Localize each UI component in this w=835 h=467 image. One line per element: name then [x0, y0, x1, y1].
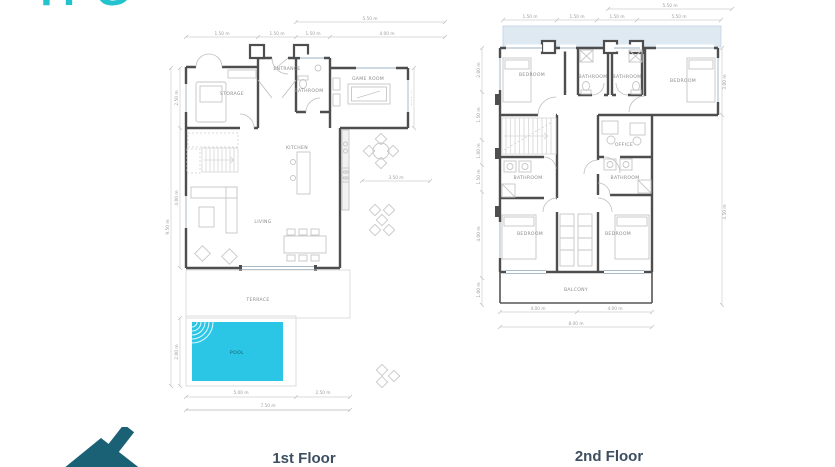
room-label-pool: POOL [230, 350, 244, 356]
floor2-caption: 2nd Floor [571, 448, 647, 465]
toilet [583, 82, 590, 91]
dim-label: 4.00 m [607, 306, 622, 312]
wardrobe [578, 214, 592, 266]
office-chair [607, 136, 615, 144]
dim-label: 4.00 m [530, 306, 545, 312]
cabinet [228, 70, 256, 78]
room-label-bathroom: BATHROOM [295, 88, 324, 94]
dim-label: 1.50 m [522, 14, 537, 20]
floorplans-drawing: 5.50 m 1.50 m 1.50 m 1.50 m 4.00 m 3.50 … [0, 0, 835, 467]
toilet [633, 82, 640, 91]
floor2-stairs [502, 118, 556, 154]
dim-label: 3.00 m [722, 74, 728, 89]
room-label-living: LIVING [254, 219, 271, 225]
room-label-storage: STORAGE [220, 91, 244, 97]
dim-label: 1.50 m [214, 31, 229, 37]
pool-area: POOL [171, 301, 296, 386]
kitchen-island [297, 152, 310, 194]
floor1-plan: 5.50 m 1.50 m 1.50 m 1.50 m 4.00 m 3.50 … [165, 16, 447, 412]
dim-label: 2.50 m [174, 90, 180, 105]
office-desk [630, 123, 645, 135]
toilet [300, 80, 307, 89]
dim-label: 5.00 m [233, 390, 248, 396]
house-logo [50, 427, 160, 467]
room-label-kitchen: KITCHEN [286, 145, 308, 151]
sofa [191, 187, 237, 198]
sink [315, 65, 321, 71]
dim-label: 1.50 m [476, 107, 482, 122]
dim-label: 1.50 m [269, 31, 284, 37]
room-label-bedroom: BEDROOM [519, 72, 545, 78]
dim-label: 1.50 m [569, 14, 584, 20]
house-logo-roof [58, 438, 146, 467]
dim-label: 3.50 m [388, 175, 403, 181]
room-label-game-room: GAME ROOM [352, 76, 384, 82]
armchair [195, 246, 211, 262]
floor1-caption-text: 1st Floor [272, 450, 335, 467]
office-desk [602, 121, 618, 134]
sink [504, 161, 516, 172]
dim-label: 4.00 m [174, 190, 180, 205]
wardrobe [560, 214, 574, 266]
dim-label: 1.00 m [476, 282, 482, 297]
room-label-bathroom: BATHROOM [613, 74, 642, 80]
floorplan-sheet: TPG 5.50 m 1.50 m 1.50 m 1.50 m 4.00 m 3… [0, 0, 835, 467]
dim-label: 1.50 m [609, 14, 624, 20]
dim-label: 4.50 m [722, 204, 728, 219]
floor1-caption: 1st Floor [268, 450, 340, 467]
terrace: TERRACE [186, 270, 350, 318]
dim-label: 9.50 m [165, 219, 171, 234]
coffee-table [199, 207, 214, 227]
sink [519, 161, 531, 172]
floor1-stairs [187, 133, 238, 173]
dim-label: 2.00 m [174, 344, 180, 359]
armchair [222, 249, 238, 265]
room-label-entrance: ENTRANCE [273, 66, 300, 72]
dim-label: 4.00 m [476, 226, 482, 241]
dim-label: 2.50 m [315, 390, 330, 396]
dim-label: 5.50 m [671, 14, 686, 20]
dim-label: 1.50 m [305, 31, 320, 37]
dim-label: 1.00 m [476, 143, 482, 158]
dim-label: 2.00 m [476, 62, 482, 77]
room-label-bathroom: BATHROOM [579, 74, 608, 80]
floor1-room-labels: STORAGE ENTRANCE BATHROOM GAME ROOM KITC… [220, 66, 384, 225]
dim-label: 5.50 m [662, 3, 677, 9]
bed [503, 58, 531, 102]
dining-table [284, 236, 326, 253]
dim-label: 8.00 m [568, 321, 583, 327]
floor2-plan: 5.50 m 1.50 m 1.50 m 1.50 m 5.50 m 3.00 … [476, 3, 734, 329]
sink [620, 159, 632, 170]
room-label-terrace: TERRACE [245, 297, 269, 303]
room-label-bedroom: BEDROOM [670, 78, 696, 84]
outdoor-table [373, 143, 389, 159]
office-chair [633, 137, 641, 145]
column [542, 41, 555, 53]
dim-label: 1.50 m [476, 169, 482, 184]
bed [615, 215, 649, 259]
room-label-bedroom: BEDROOM [517, 231, 543, 237]
room-label-bathroom: BATHROOM [514, 175, 543, 181]
room-label-bathroom: BATHROOM [611, 175, 640, 181]
room-label-office: OFFICE [615, 142, 633, 148]
dim-label: 4.00 m [379, 31, 394, 37]
column [250, 45, 264, 58]
dim-label: 7.50 m [260, 403, 275, 409]
room-label-balcony: BALCONY [564, 287, 588, 293]
room-label-bedroom: BEDROOM [605, 231, 631, 237]
dim-label: 5.50 m [362, 16, 377, 22]
floor2-caption-text: 2nd Floor [575, 448, 643, 465]
bed [502, 215, 536, 259]
